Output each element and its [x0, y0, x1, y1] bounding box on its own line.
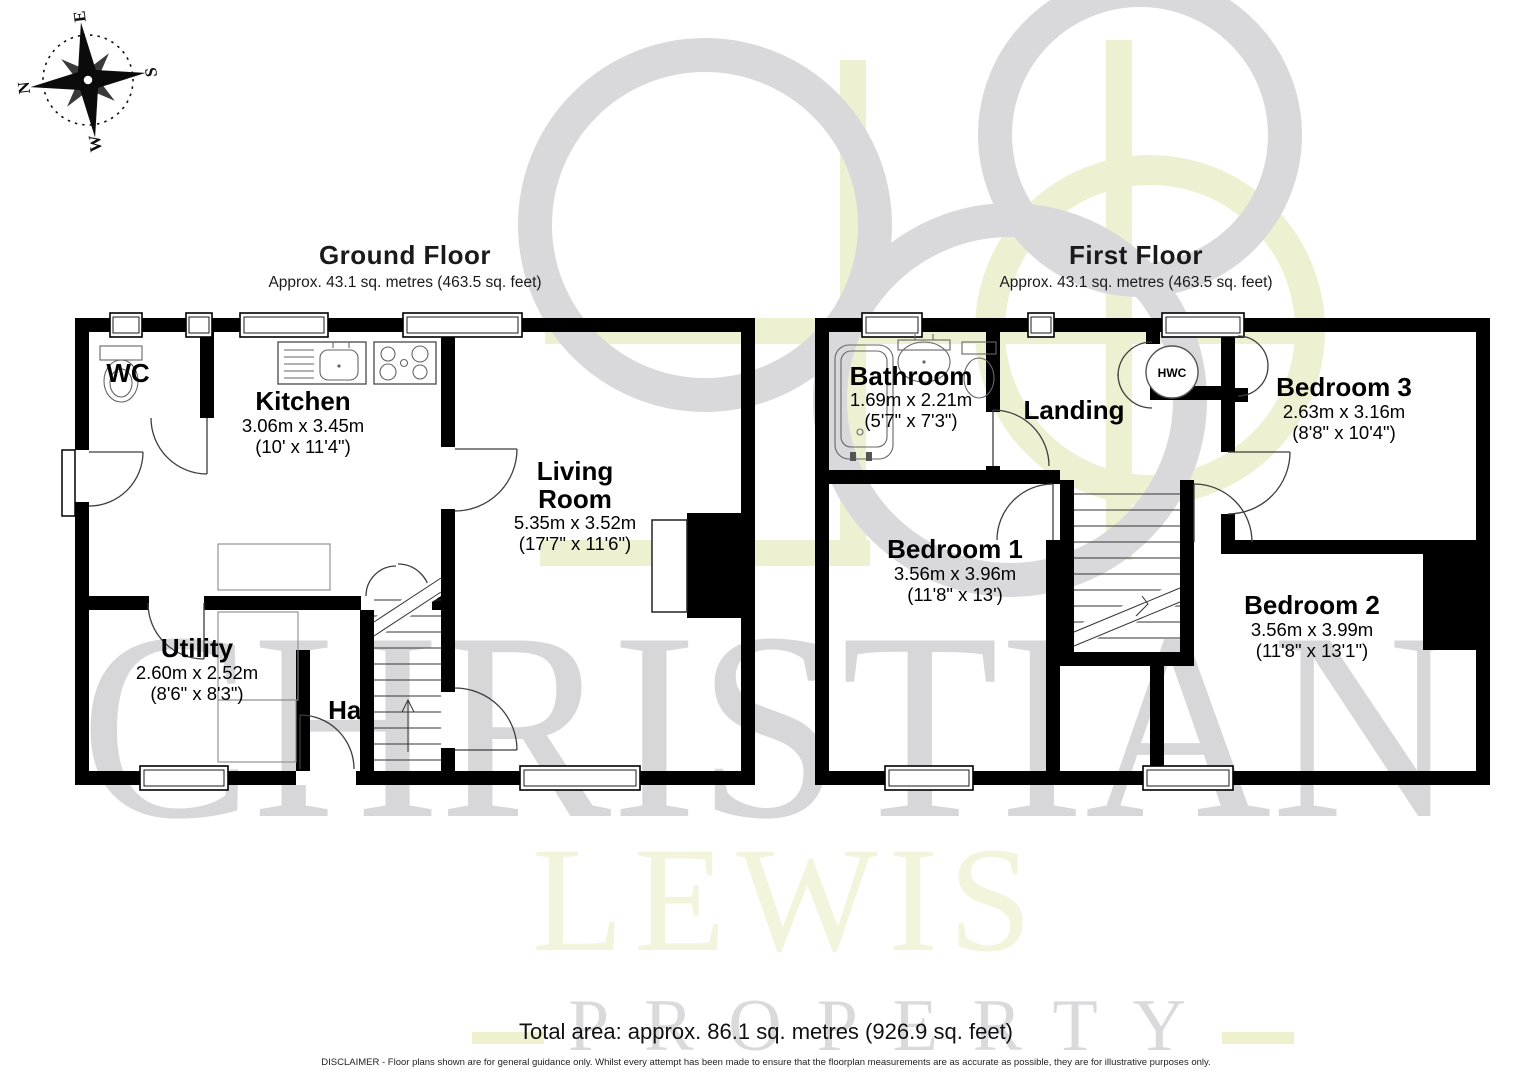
room-label-landing: Landing: [1023, 395, 1124, 425]
first-floor-title-block: First Floor Approx. 43.1 sq. metres (463…: [911, 240, 1361, 292]
ground-floor-subtitle: Approx. 43.1 sq. metres (463.5 sq. feet): [180, 274, 630, 292]
room-label-bedroom2: Bedroom 2: [1244, 590, 1380, 620]
ground-floor-title: Ground Floor: [180, 240, 630, 271]
room-dim-bathroom-imperial: (5'7" x 7'3"): [864, 410, 957, 431]
chimney-breast: [687, 513, 755, 618]
ground-floor-furniture: [218, 544, 330, 762]
room-label-kitchen: Kitchen: [255, 386, 350, 416]
compass-icon: N E S W: [6, 2, 169, 161]
room-label-wc: WC: [106, 358, 150, 388]
hob-icon: [374, 342, 436, 384]
room-dim-living-metric: 5.35m x 3.52m: [514, 512, 636, 533]
front-door-opening: [296, 771, 356, 785]
side-door-opening: [75, 450, 89, 502]
room-dim-kitchen-imperial: (10' x 11'4"): [255, 436, 351, 457]
room-dim-bathroom-metric: 1.69m x 2.21m: [850, 389, 972, 410]
room-dim-utility-imperial: (8'6" x 8'3"): [150, 683, 243, 704]
ground-floor-title-block: Ground Floor Approx. 43.1 sq. metres (46…: [180, 240, 630, 292]
room-dim-bedroom2-imperial: (11'8" x 13'1"): [1256, 640, 1368, 661]
ground-floor-plan: WC Kitchen 3.06m x 3.45m (10' x 11'4") L…: [62, 313, 755, 790]
first-floor-plan: HWC Bathroom 1.69m x 2.21m (5'7" x 7'3")…: [815, 313, 1490, 790]
first-floor-stairs: [1074, 494, 1180, 648]
kitchen-sink-icon: [278, 342, 366, 384]
room-dim-bedroom2-metric: 3.56m x 3.99m: [1251, 619, 1373, 640]
hwc-cylinder-icon: HWC: [1146, 346, 1198, 398]
first-floor-subtitle: Approx. 43.1 sq. metres (463.5 sq. feet): [911, 274, 1361, 292]
compass-n: N: [14, 80, 34, 95]
room-dim-utility-metric: 2.60m x 2.52m: [136, 662, 258, 683]
room-label-living-1: Living: [537, 456, 614, 486]
room-label-living-2: Room: [538, 484, 612, 514]
compass-s: S: [141, 66, 161, 78]
room-label-utility: Utility: [161, 633, 234, 663]
room-label-bedroom1: Bedroom 1: [887, 534, 1023, 564]
chimney-breast-bed2: [1423, 548, 1476, 650]
room-label-bathroom: Bathroom: [850, 361, 973, 391]
ground-floor-stairs: [374, 574, 441, 760]
room-label-bedroom3: Bedroom 3: [1276, 372, 1412, 402]
floorplan-page: CHRISTIAN LEWIS PROPERTY N E S W: [0, 0, 1532, 1080]
compass-e: E: [70, 10, 90, 24]
room-dim-kitchen-metric: 3.06m x 3.45m: [242, 415, 364, 436]
room-dim-bedroom3-metric: 2.63m x 3.16m: [1283, 401, 1405, 422]
room-dim-bedroom1-metric: 3.56m x 3.96m: [894, 563, 1016, 584]
fireplace-recess: [652, 520, 687, 612]
side-door-canopy: [62, 450, 75, 516]
disclaimer-text: DISCLAIMER - Floor plans shown are for g…: [0, 1057, 1532, 1068]
first-floor-doors: [993, 336, 1290, 542]
compass-w: W: [85, 134, 106, 153]
room-label-hall: Hall: [328, 695, 376, 725]
total-area-text: Total area: approx. 86.1 sq. metres (926…: [0, 1019, 1532, 1045]
first-floor-title: First Floor: [911, 240, 1361, 271]
room-dim-living-imperial: (17'7" x 11'6"): [519, 533, 631, 554]
hwc-label: HWC: [1158, 366, 1187, 380]
plan-layer: N E S W: [0, 0, 1532, 1080]
room-dim-bedroom1-imperial: (11'8" x 13'): [907, 584, 1003, 605]
room-dim-bedroom3-imperial: (8'8" x 10'4"): [1292, 422, 1396, 443]
